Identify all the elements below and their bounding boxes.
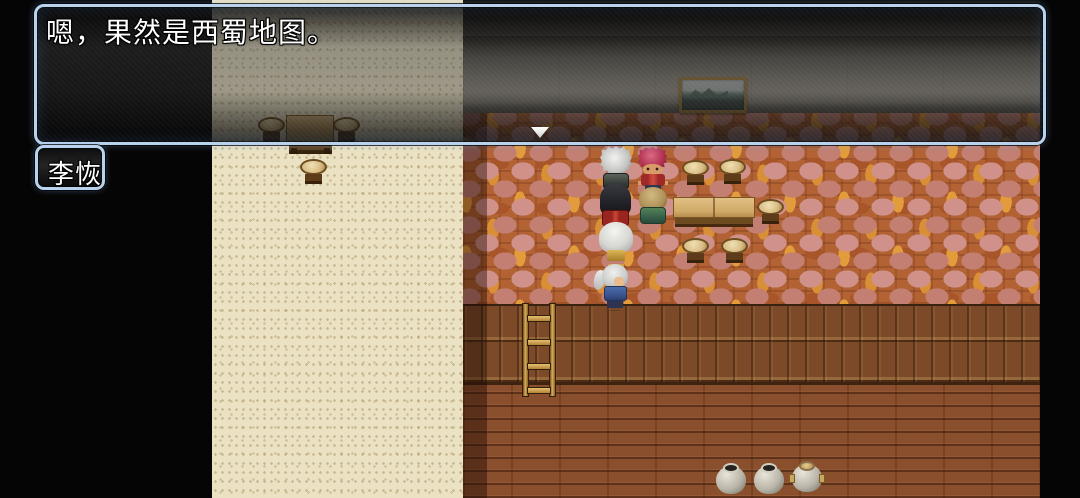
ceramic-pot	[754, 463, 784, 494]
stool-top	[757, 199, 784, 215]
stool-top	[682, 160, 709, 176]
ceramic-pot	[716, 463, 746, 494]
name-box: 李恢	[35, 145, 105, 190]
stool	[300, 159, 327, 185]
stool-leg	[762, 214, 779, 224]
speaker-name: 李恢	[48, 154, 102, 191]
stool-leg	[305, 174, 322, 184]
stool	[719, 159, 746, 185]
legs	[607, 301, 623, 308]
stool	[721, 238, 748, 264]
stool-leg	[687, 253, 704, 263]
stool-top	[300, 159, 327, 175]
message-window[interactable]: 嗯，果然是西蜀地图。	[34, 4, 1046, 145]
ladder-rung	[527, 315, 551, 322]
ladder-rung	[527, 339, 551, 346]
stool-top	[721, 238, 748, 254]
game-screen[interactable]: 嗯，果然是西蜀地图。 李恢	[0, 0, 1080, 498]
stool-leg	[687, 175, 704, 185]
stool-top	[719, 159, 746, 175]
character-sprite-player-blue-jacket	[594, 264, 628, 311]
body	[604, 286, 627, 301]
stool-top	[682, 238, 709, 254]
character-sprite-long-white-hair-gold	[599, 222, 633, 264]
table-leg	[324, 148, 330, 154]
stool	[682, 238, 709, 264]
wood-floor	[463, 385, 1040, 498]
ladder-rung	[527, 387, 551, 394]
hair	[599, 222, 633, 253]
wooden-ladder	[522, 303, 556, 397]
stool	[682, 160, 709, 186]
character-sprite-blonde-green-tunic	[637, 187, 671, 230]
stool-leg	[726, 253, 743, 263]
pot-mouth	[723, 463, 739, 473]
ladder-rung	[527, 363, 551, 370]
body	[607, 250, 625, 261]
body	[640, 207, 666, 224]
pot-handle	[789, 474, 795, 483]
stool	[757, 199, 784, 225]
table-seam	[713, 198, 715, 217]
lidded-pot	[792, 461, 822, 492]
wall-shadow	[463, 113, 487, 498]
stool-leg	[724, 174, 741, 184]
long-table	[673, 197, 755, 227]
message-text: 嗯，果然是西蜀地图。	[46, 16, 1006, 49]
pot-handle	[819, 474, 825, 483]
table-front	[675, 218, 753, 227]
hair	[600, 146, 632, 176]
pot-lid	[799, 461, 815, 471]
table-leg	[291, 148, 297, 154]
pot-mouth	[761, 463, 777, 473]
character-sprite-crimson-hair-facing-down	[636, 147, 670, 190]
